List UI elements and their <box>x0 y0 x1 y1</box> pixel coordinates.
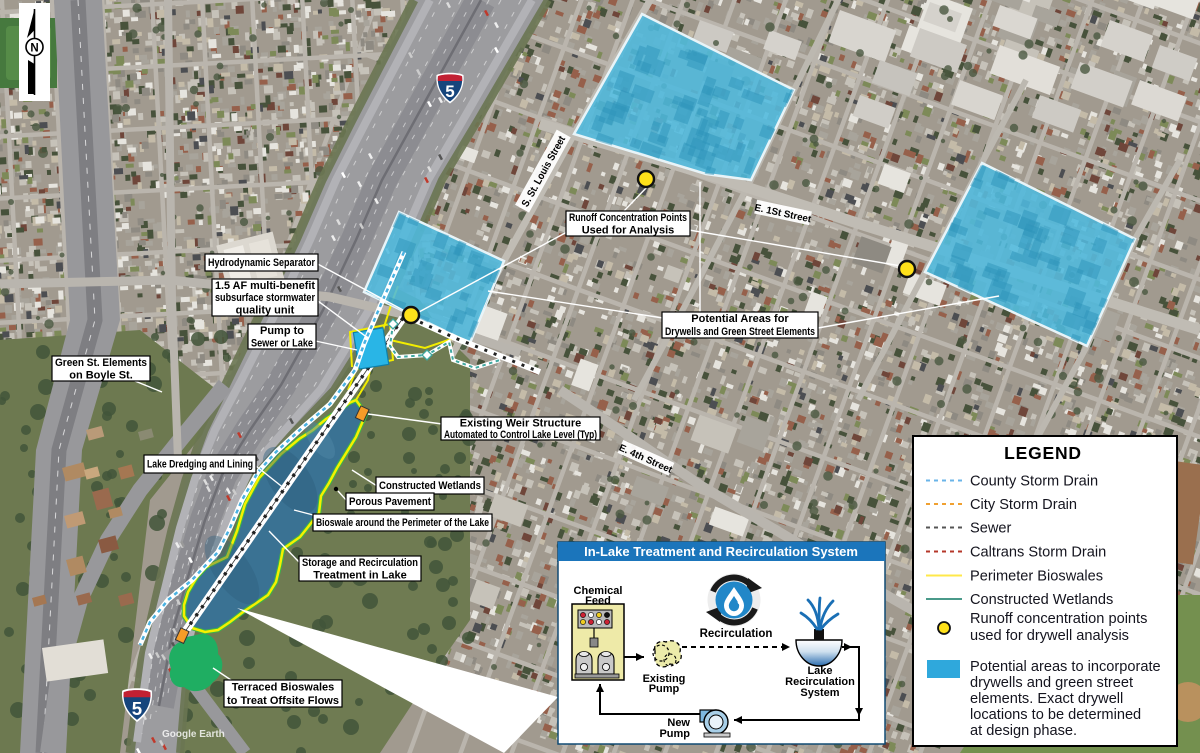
svg-text:Lake Dredging and Lining: Lake Dredging and Lining <box>147 459 253 471</box>
svg-text:In-Lake Treatment and Recircul: In-Lake Treatment and Recirculation Syst… <box>584 544 858 559</box>
svg-text:Drywells and Green Street Elem: Drywells and Green Street Elements <box>665 326 815 338</box>
svg-text:used for drywell analysis: used for drywell analysis <box>970 628 1129 644</box>
svg-text:Constructed Wetlands: Constructed Wetlands <box>970 592 1113 608</box>
svg-text:Sewer: Sewer <box>970 521 1012 537</box>
svg-text:Potential Areas for: Potential Areas for <box>691 313 789 325</box>
svg-text:Google Earth: Google Earth <box>162 729 225 740</box>
svg-text:Pump: Pump <box>649 683 680 695</box>
svg-text:Constructed Wetlands: Constructed Wetlands <box>379 480 481 492</box>
svg-text:subsurface stormwater: subsurface stormwater <box>215 292 316 304</box>
svg-text:Pump: Pump <box>659 728 690 740</box>
svg-text:elements. Exact drywell: elements. Exact drywell <box>970 691 1123 707</box>
svg-text:Porous Pavement: Porous Pavement <box>349 496 431 508</box>
svg-text:locations to be determined: locations to be determined <box>970 707 1141 723</box>
svg-text:N: N <box>30 43 38 55</box>
svg-text:Hydrodynamic Separator: Hydrodynamic Separator <box>208 257 316 269</box>
svg-text:Sewer or Lake: Sewer or Lake <box>251 338 313 350</box>
svg-text:5: 5 <box>132 698 142 719</box>
svg-text:to Treat Offsite Flows: to Treat Offsite Flows <box>227 695 339 707</box>
svg-text:Green St. Elements: Green St. Elements <box>55 357 147 369</box>
svg-text:at design phase.: at design phase. <box>970 723 1077 739</box>
svg-text:quality unit: quality unit <box>236 305 295 317</box>
svg-text:Automated to Control Lake Leve: Automated to Control Lake Level (Typ) <box>444 429 597 441</box>
svg-text:5: 5 <box>445 82 454 101</box>
svg-text:Caltrans Storm Drain: Caltrans Storm Drain <box>970 545 1106 561</box>
svg-text:Feed: Feed <box>585 595 611 607</box>
svg-text:Runoff Concentration Points: Runoff Concentration Points <box>569 212 687 224</box>
svg-text:Terraced Bioswales: Terraced Bioswales <box>232 682 335 694</box>
svg-text:Recirculation: Recirculation <box>700 628 773 640</box>
svg-text:1.5 AF multi-benefit: 1.5 AF multi-benefit <box>215 280 315 292</box>
svg-text:City Storm Drain: City Storm Drain <box>970 497 1077 513</box>
svg-text:Runoff concentration points: Runoff concentration points <box>970 611 1147 627</box>
svg-text:Pump to: Pump to <box>260 325 304 337</box>
svg-text:Used for Analysis: Used for Analysis <box>582 225 675 237</box>
svg-text:LEGEND: LEGEND <box>1004 443 1082 463</box>
svg-text:System: System <box>800 687 839 699</box>
svg-text:on Boyle St.: on Boyle St. <box>69 370 133 382</box>
svg-text:County Storm Drain: County Storm Drain <box>970 474 1098 490</box>
svg-text:drywells and green street: drywells and green street <box>970 675 1133 691</box>
svg-text:Bioswale around the Perimeter: Bioswale around the Perimeter of the Lak… <box>316 517 489 529</box>
svg-text:Perimeter Bioswales: Perimeter Bioswales <box>970 569 1103 585</box>
svg-text:Treatment in Lake: Treatment in Lake <box>313 570 407 582</box>
svg-text:Potential areas to incorporate: Potential areas to incorporate <box>970 659 1161 675</box>
svg-text:Existing Weir Structure: Existing Weir Structure <box>460 418 581 430</box>
svg-text:Storage and Recirculation: Storage and Recirculation <box>302 557 418 569</box>
